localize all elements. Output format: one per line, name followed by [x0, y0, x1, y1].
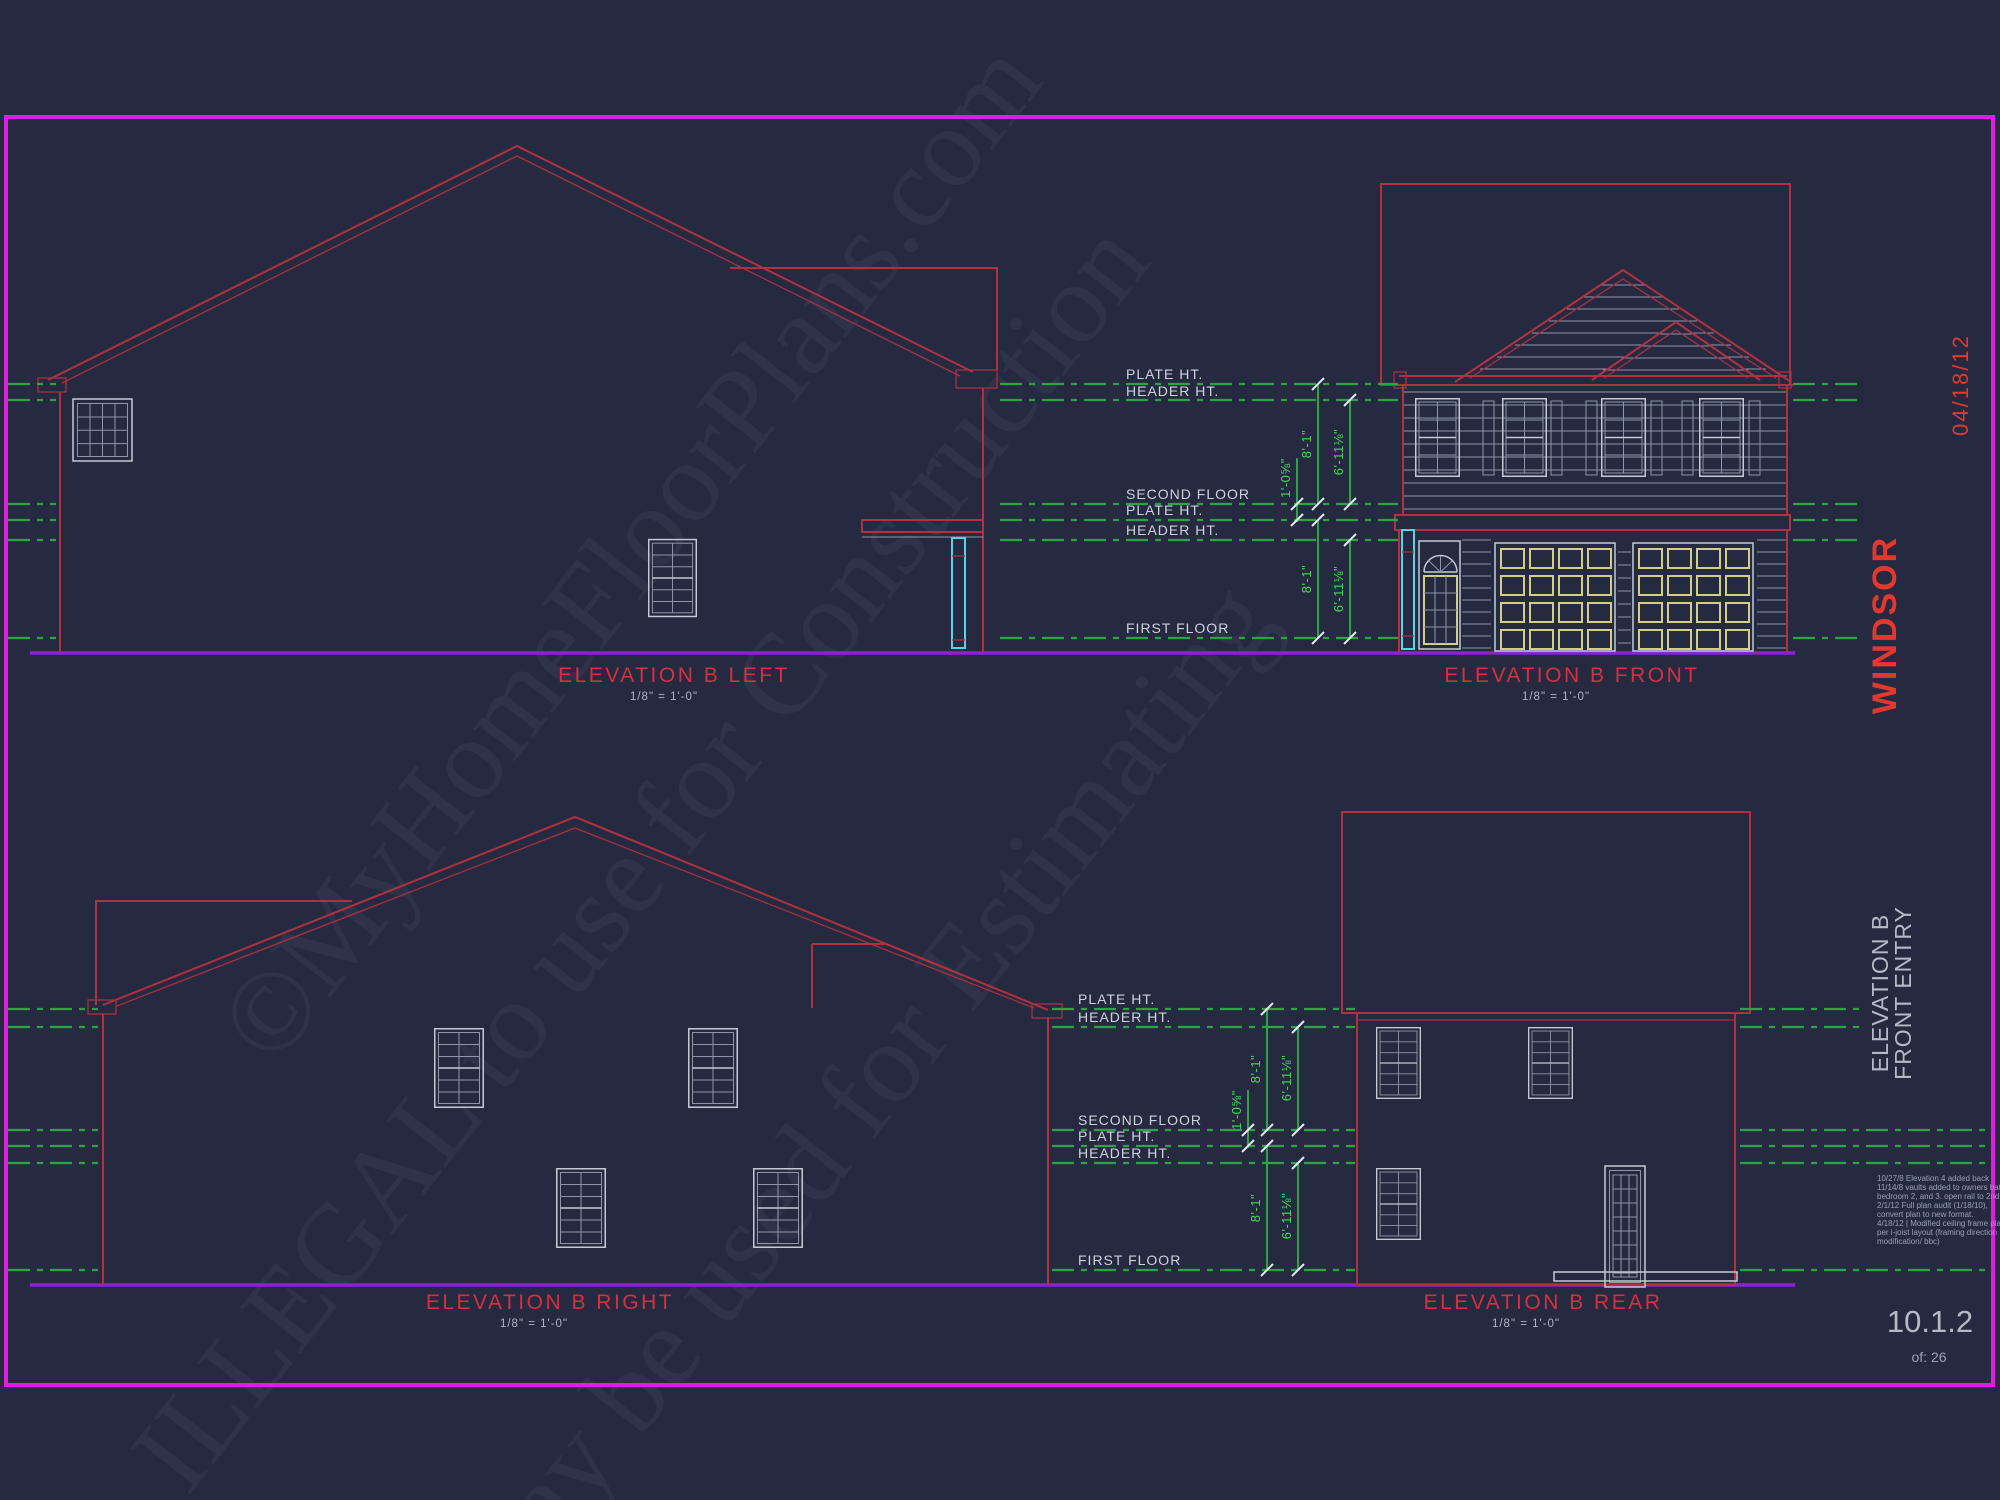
window-upper-right — [689, 1029, 738, 1108]
window-upper-left — [1377, 1028, 1421, 1099]
siding-between-garage-doors — [1618, 552, 1631, 643]
trim-board — [1551, 401, 1562, 475]
elevation-b-rear: ELEVATION B REAR 1/8" = 1'-0" — [1342, 812, 1750, 1330]
dim-header-height: 6'-11⅛" — [1279, 1055, 1294, 1102]
header-ht-label: HEADER HT. — [1078, 1009, 1171, 1025]
drawing-sheet: ©MyHomeFloorPlans.com ILLEGAL to use for… — [0, 0, 2000, 1500]
trim-board — [1586, 401, 1597, 475]
window-grid-4x4 — [73, 399, 132, 461]
window-lower-left — [557, 1169, 606, 1248]
trim-board — [1651, 401, 1662, 475]
title-block-right-margin: 04/18/12 WINDSOR ELEVATION B FRONT ENTRY… — [1866, 334, 2000, 1365]
window-upper-1 — [1416, 399, 1460, 477]
plan-name: WINDSOR — [1866, 536, 1904, 714]
trim-board — [1749, 401, 1760, 475]
trim-board — [1483, 401, 1494, 475]
door-frame — [1419, 541, 1460, 649]
dim-floor-depth: 1'-0⅝" — [1278, 458, 1293, 498]
watermark: ©MyHomeFloorPlans.com ILLEGAL to use for… — [107, 18, 1298, 1500]
elevation-b-front: ELEVATION B FRONT 1/8" = 1'-0" — [1381, 184, 1793, 703]
window-lower-left — [1377, 1169, 1421, 1240]
sheet-title-line2: FRONT ENTRY — [1890, 906, 1916, 1080]
dim-plate-height: 8'-1" — [1299, 565, 1314, 593]
cad-canvas: ©MyHomeFloorPlans.com ILLEGAL to use for… — [0, 0, 2000, 1500]
dim-header-height: 6'-11⅛" — [1331, 566, 1346, 613]
siding-lines — [1404, 392, 1786, 509]
dimension-ticks — [1242, 1003, 1304, 1276]
siding-right-of-garage — [1757, 540, 1786, 648]
wall-outline — [1357, 1013, 1735, 1285]
plate-ht-label: PLATE HT. — [1078, 1128, 1155, 1144]
door-glass-grid — [1424, 576, 1457, 644]
trim-board — [1682, 401, 1693, 475]
window-upper-3 — [1602, 399, 1646, 477]
dim-plate-height: 8'-1" — [1248, 1055, 1263, 1083]
garage-door-right — [1633, 543, 1753, 651]
elevation-rear-scale: 1/8" = 1'-0" — [1492, 1318, 1560, 1330]
elevation-right-scale: 1/8" = 1'-0" — [500, 1318, 568, 1330]
revision-notes: 10/27/8 Elevation 4 added back 11/14/8 v… — [1877, 1174, 2000, 1246]
plate-ht-label: PLATE HT. — [1126, 366, 1203, 382]
rear-door — [1605, 1166, 1645, 1287]
plate-ht-label: PLATE HT. — [1078, 991, 1155, 1007]
garage-door-left — [1495, 543, 1615, 651]
header-ht-label: HEADER HT. — [1078, 1145, 1171, 1161]
sheet-number: 10.1.2 — [1887, 1304, 1973, 1339]
dim-header-height: 6'-11⅛" — [1279, 1193, 1294, 1240]
dimension-ticks — [1291, 378, 1356, 644]
revision-line: 4/18/12 | Modified ceiling frame plan — [1877, 1219, 2000, 1228]
second-floor-label: SECOND FLOOR — [1126, 486, 1250, 502]
revision-line: 11/14/8 vaults added to owners bath — [1877, 1183, 2000, 1192]
elevation-left-title: ELEVATION B LEFT — [558, 664, 790, 687]
frieze-band — [1395, 515, 1790, 530]
revision-line: 2/1/12 Full plan audit (1/18/10), — [1877, 1201, 1988, 1210]
first-floor-label: FIRST FLOOR — [1078, 1252, 1181, 1268]
entry-door — [1419, 541, 1460, 649]
siding-left-of-garage — [1462, 540, 1491, 648]
revision-line: 10/27/8 Elevation 4 added back — [1877, 1174, 1990, 1183]
entry-trim-post — [1402, 530, 1414, 649]
entry-trim-ticks — [1402, 552, 1414, 636]
dim-header-height: 6'-11⅛" — [1331, 429, 1346, 476]
dim-floor-depth: 1'-0⅝" — [1229, 1090, 1244, 1130]
plan-date: 04/18/12 — [1948, 334, 1973, 436]
plate-ht-label: PLATE HT. — [1126, 502, 1203, 518]
window-upper-4 — [1700, 399, 1744, 477]
elevation-front-scale: 1/8" = 1'-0" — [1522, 691, 1590, 703]
revision-line: convert plan to new format. — [1877, 1210, 1974, 1219]
elevation-front-title: ELEVATION B FRONT — [1444, 664, 1699, 687]
first-floor-label: FIRST FLOOR — [1126, 620, 1229, 636]
second-floor-label: SECOND FLOOR — [1078, 1112, 1202, 1128]
window-upper-2 — [1503, 399, 1547, 477]
revision-line: per i-joist layout (framing direction — [1877, 1228, 1997, 1237]
elevation-rear-title: ELEVATION B REAR — [1424, 1291, 1663, 1314]
roof-block — [1342, 812, 1750, 1013]
revision-line: modification/ bbc) — [1877, 1237, 1940, 1246]
dim-plate-height: 8'-1" — [1299, 430, 1314, 458]
window-upper-right — [1529, 1028, 1573, 1099]
porch-post-ticks — [952, 556, 965, 640]
header-ht-label: HEADER HT. — [1126, 383, 1219, 399]
elevation-right-title: ELEVATION B RIGHT — [426, 1291, 674, 1314]
header-ht-label: HEADER HT. — [1126, 522, 1219, 538]
dim-plate-height: 8'-1" — [1248, 1194, 1263, 1222]
roof-block — [1381, 184, 1790, 385]
sheet-of: of: 26 — [1911, 1349, 1946, 1365]
revision-line: bedroom 2, and 3. open rail to 2nd — [1877, 1192, 1999, 1201]
elevation-left-scale: 1/8" = 1'-0" — [630, 691, 698, 703]
